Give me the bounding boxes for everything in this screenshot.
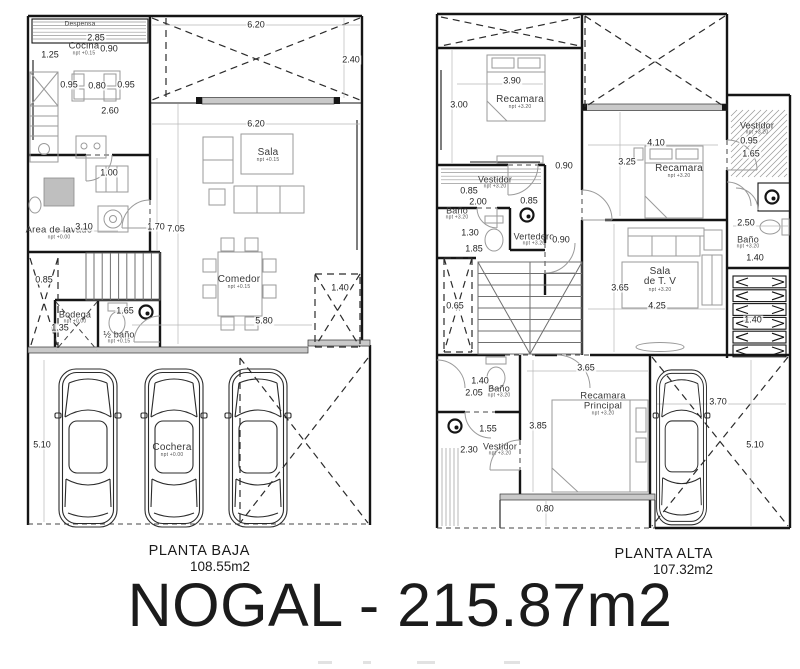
room-level-note: npt +3.20 bbox=[478, 185, 512, 190]
dimension-label: 0.80 bbox=[535, 505, 555, 514]
dimension-label: 5.10 bbox=[32, 441, 52, 450]
room-level-note: npt +0.00 bbox=[26, 235, 93, 240]
dimension-label: 1.30 bbox=[460, 229, 480, 238]
dimension-label: 6.20 bbox=[246, 120, 266, 129]
room-level-note: npt +3.20 bbox=[483, 452, 517, 457]
dimension-label: 0.90 bbox=[554, 162, 574, 171]
dimension-label: 1.65 bbox=[115, 307, 135, 316]
dimension-label: 2.05 bbox=[464, 389, 484, 398]
room-label: Recamaranpt +3.20 bbox=[655, 164, 703, 180]
room-level-note: npt +3.20 bbox=[737, 245, 760, 250]
dimension-label: 5.10 bbox=[745, 441, 765, 450]
room-level-note: npt +3.20 bbox=[580, 411, 625, 416]
dimension-label: 0.95 bbox=[739, 137, 759, 146]
room-label: Comedornpt +0.15 bbox=[218, 275, 261, 291]
room-level-note: npt +0.15 bbox=[69, 51, 100, 56]
dimension-label: 3.65 bbox=[576, 364, 596, 373]
plan-title-baja: PLANTA BAJA 108.55m2 bbox=[118, 543, 250, 574]
room-label: Despensa bbox=[65, 22, 96, 29]
room-label: Salanpt +0.15 bbox=[257, 148, 280, 164]
dimension-label: 2.60 bbox=[100, 107, 120, 116]
dimension-label: 4.10 bbox=[646, 139, 666, 148]
dimension-label: 2.40 bbox=[341, 56, 361, 65]
dimension-label: 0.85 bbox=[459, 187, 479, 196]
plan-name: PLANTA ALTA bbox=[580, 546, 713, 562]
dimension-label: 0.85 bbox=[519, 197, 539, 206]
room-label: Salade T. Vnpt +3.20 bbox=[644, 267, 676, 293]
project-title: NOGAL - 215.87m2 bbox=[0, 574, 800, 636]
dimension-label: 1.35 bbox=[50, 324, 70, 333]
room-label: ½ bañonpt +0.15 bbox=[103, 331, 134, 346]
room-label: Bañonpt +3.20 bbox=[446, 207, 469, 222]
dimension-label: 3.90 bbox=[502, 77, 522, 86]
room-label: Cocheranpt +0.00 bbox=[152, 443, 191, 459]
dimension-label: 0.95 bbox=[59, 81, 79, 90]
room-level-note: npt +0.15 bbox=[257, 159, 280, 164]
room-level-note: npt +3.20 bbox=[514, 242, 555, 247]
room-label: Vertederonpt +3.20 bbox=[514, 233, 555, 248]
dimension-label: 1.85 bbox=[464, 245, 484, 254]
floorplan-sheet: DespensaCocinanpt +0.15Salanpt +0.15Come… bbox=[0, 0, 800, 669]
dimension-label: 0.90 bbox=[99, 45, 119, 54]
dimension-label: 3.85 bbox=[528, 422, 548, 431]
room-level-note: npt +0.15 bbox=[218, 286, 261, 291]
room-level-note: npt +3.20 bbox=[488, 394, 511, 399]
dimension-label: 1.40 bbox=[470, 377, 490, 386]
dimension-label: 0.65 bbox=[445, 302, 465, 311]
room-level-note: npt +3.20 bbox=[496, 106, 544, 111]
dimension-label: 3.70 bbox=[708, 398, 728, 407]
dimension-label: 2.50 bbox=[736, 219, 756, 228]
dimension-label: 5.80 bbox=[254, 317, 274, 326]
dimension-label: 1.25 bbox=[40, 51, 60, 60]
dimension-label: 7.05 bbox=[166, 225, 186, 234]
dimension-label: 1.40 bbox=[745, 254, 765, 263]
dimension-label: 0.95 bbox=[116, 81, 136, 90]
dimension-label: 1.55 bbox=[478, 425, 498, 434]
room-level-note: npt +3.20 bbox=[644, 288, 676, 293]
dimension-label: 0.80 bbox=[87, 82, 107, 91]
dimension-label: 1.40 bbox=[330, 284, 350, 293]
dimension-label: 1.40 bbox=[743, 316, 763, 325]
room-label: Bañonpt +3.20 bbox=[488, 385, 511, 400]
dimension-label: 0.90 bbox=[551, 236, 571, 245]
room-level-note: npt +3.20 bbox=[446, 216, 469, 221]
dimension-label: 1.65 bbox=[741, 150, 761, 159]
room-level-note: npt +0.15 bbox=[103, 340, 134, 345]
dimension-label: 3.25 bbox=[617, 158, 637, 167]
room-name: Despensa bbox=[65, 22, 96, 29]
dimension-label: 1.70 bbox=[146, 223, 166, 232]
room-label: Vestidornpt +3.20 bbox=[740, 122, 774, 137]
dimension-label: 4.25 bbox=[647, 302, 667, 311]
plan-name: PLANTA BAJA bbox=[118, 543, 250, 559]
dimension-label: 3.10 bbox=[74, 223, 94, 232]
dimension-label: 6.20 bbox=[246, 21, 266, 30]
dimension-label: 0.85 bbox=[34, 276, 54, 285]
dimension-label: 2.85 bbox=[86, 34, 106, 43]
dimension-label: 3.00 bbox=[449, 101, 469, 110]
room-label: Bañonpt +3.20 bbox=[737, 236, 760, 251]
room-label: Cocinanpt +0.15 bbox=[69, 41, 100, 56]
room-level-note: npt +0.00 bbox=[152, 454, 191, 459]
dimension-label: 2.00 bbox=[468, 198, 488, 207]
dimension-label: 2.30 bbox=[459, 446, 479, 455]
room-label: Vestidornpt +3.20 bbox=[483, 443, 517, 458]
room-level-note: npt +3.20 bbox=[655, 175, 703, 180]
room-label: Vestidornpt +3.20 bbox=[478, 176, 512, 191]
dimension-label: 1.00 bbox=[99, 169, 119, 178]
room-label: RecamaraPrincipalnpt +3.20 bbox=[580, 392, 625, 417]
dimension-label: 3.65 bbox=[610, 284, 630, 293]
room-label: Recamaranpt +3.20 bbox=[496, 95, 544, 111]
